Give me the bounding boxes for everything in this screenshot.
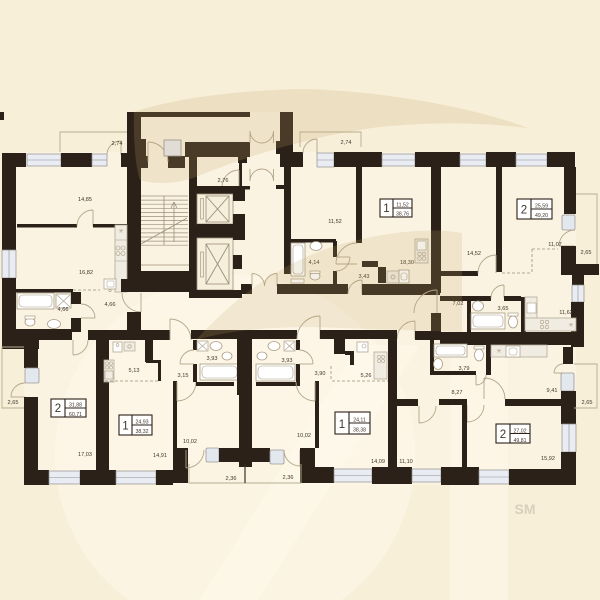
svg-text:14,85: 14,85	[78, 197, 92, 203]
svg-text:4,66: 4,66	[58, 307, 69, 313]
svg-text:✳: ✳	[118, 228, 123, 235]
svg-text:24,93: 24,93	[136, 420, 149, 426]
svg-text:8,27: 8,27	[452, 390, 463, 396]
svg-text:5,26: 5,26	[361, 373, 372, 379]
svg-text:3,65: 3,65	[498, 306, 509, 312]
svg-text:3,15: 3,15	[178, 373, 189, 379]
svg-text:38,76: 38,76	[396, 212, 409, 218]
svg-text:24,11: 24,11	[353, 418, 366, 424]
svg-text:1: 1	[122, 421, 128, 433]
svg-text:3,93: 3,93	[207, 356, 218, 362]
svg-text:14,09: 14,09	[371, 459, 385, 465]
svg-text:49,81: 49,81	[514, 438, 527, 444]
svg-text:16,82: 16,82	[79, 270, 93, 276]
svg-text:11,10: 11,10	[399, 459, 413, 465]
svg-text:2,76: 2,76	[218, 178, 229, 184]
svg-text:3,93: 3,93	[282, 358, 293, 364]
svg-text:2: 2	[55, 403, 61, 415]
svg-text:2,65: 2,65	[581, 250, 592, 256]
svg-text:SM: SM	[515, 501, 536, 517]
svg-text:10,02: 10,02	[183, 439, 197, 445]
svg-text:38,38: 38,38	[353, 428, 366, 434]
svg-text:15,92: 15,92	[541, 456, 555, 462]
svg-text:9,41: 9,41	[547, 388, 558, 394]
svg-text:11,07: 11,07	[548, 242, 562, 248]
svg-text:31,88: 31,88	[69, 403, 82, 409]
svg-text:✳: ✳	[496, 348, 501, 355]
svg-text:1: 1	[339, 419, 345, 431]
svg-text:38,32: 38,32	[136, 429, 149, 435]
svg-text:2: 2	[500, 429, 506, 441]
svg-text:60,71: 60,71	[69, 412, 82, 418]
svg-text:2,36: 2,36	[226, 476, 237, 482]
svg-text:2: 2	[521, 205, 527, 217]
svg-text:2,74: 2,74	[341, 140, 352, 146]
svg-text:2,36: 2,36	[283, 475, 294, 481]
svg-text:11,62: 11,62	[559, 310, 573, 316]
svg-text:25,59: 25,59	[535, 204, 548, 210]
svg-text:27,02: 27,02	[514, 429, 527, 435]
svg-text:3,90: 3,90	[315, 371, 326, 377]
svg-text:2,74: 2,74	[112, 141, 123, 147]
svg-text:4,66: 4,66	[105, 302, 116, 308]
svg-text:14,91: 14,91	[153, 453, 167, 459]
svg-text:5,13: 5,13	[129, 368, 140, 374]
svg-text:2,65: 2,65	[8, 400, 19, 406]
svg-text:11,52: 11,52	[396, 203, 409, 209]
svg-text:17,03: 17,03	[78, 452, 92, 458]
svg-text:3,79: 3,79	[459, 366, 470, 372]
svg-text:11,52: 11,52	[328, 219, 342, 225]
svg-text:2,65: 2,65	[582, 400, 593, 406]
svg-text:14,52: 14,52	[467, 251, 481, 257]
svg-text:1: 1	[383, 203, 389, 215]
svg-text:49,20: 49,20	[535, 213, 548, 219]
svg-text:✳: ✳	[568, 322, 573, 329]
svg-text:10,02: 10,02	[297, 433, 311, 439]
